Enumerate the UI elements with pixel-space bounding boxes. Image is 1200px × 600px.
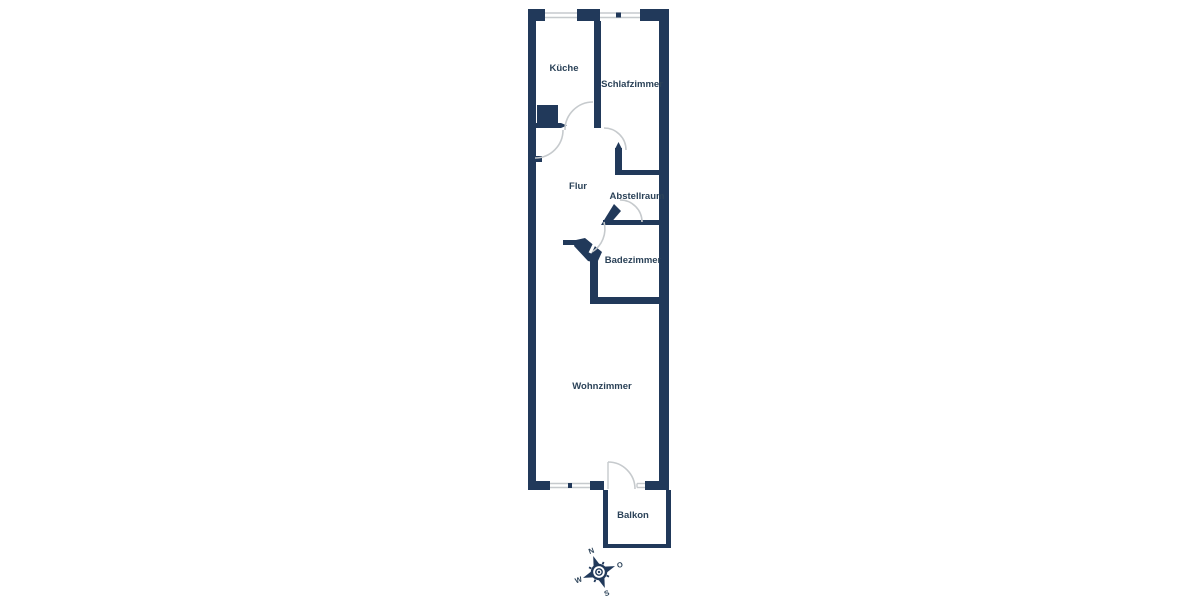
window-kueche xyxy=(545,13,577,18)
compass-label-north: N xyxy=(587,546,595,556)
wall-balkon-left xyxy=(603,490,608,548)
door-arc-balkon xyxy=(608,462,635,489)
wall-kueche-schlafzimmer xyxy=(594,21,601,128)
compass-label-east: O xyxy=(616,560,625,571)
kueche-fixture-block xyxy=(537,105,558,125)
wall-bottom-right-corner xyxy=(645,481,669,490)
door-arc-abstellraum xyxy=(620,200,642,222)
window-mullion xyxy=(568,483,572,488)
door-arc-kueche-flur xyxy=(535,130,563,158)
room-label-schlafzimmer: Schlafzimmer xyxy=(601,79,663,90)
wall-top-right-corner xyxy=(640,9,669,21)
room-labels: Küche Schlafzimmer Flur Abstellraum Bade… xyxy=(549,63,664,521)
door-swings xyxy=(535,102,642,489)
window-balkon-side xyxy=(637,484,645,488)
window-mullion xyxy=(616,13,621,18)
wall-balkon-right xyxy=(666,490,671,548)
wall-kueche-bottom xyxy=(536,123,561,128)
floorplan-page: Küche Schlafzimmer Flur Abstellraum Bade… xyxy=(0,0,1200,600)
wall-abstellraum-top xyxy=(615,170,659,175)
room-label-abstellraum: Abstellraum xyxy=(610,191,665,202)
wall-top-left-corner xyxy=(528,9,545,21)
wall-badezimmer-left xyxy=(590,255,598,300)
wall-bottom-middle xyxy=(590,481,604,490)
door-arc-schlafzimmer xyxy=(604,128,626,150)
window-wohnzimmer xyxy=(550,483,590,488)
door-arc-kueche xyxy=(565,102,593,130)
wall-badezimmer-bottom xyxy=(590,297,659,304)
room-label-flur: Flur xyxy=(569,181,587,192)
room-label-wohnzimmer: Wohnzimmer xyxy=(572,381,632,392)
window-schlafzimmer xyxy=(600,13,640,18)
room-label-badezimmer: Badezimmer xyxy=(605,255,662,266)
wall-cap xyxy=(615,142,622,149)
compass-label-south: S xyxy=(603,588,611,598)
compass-label-west: W xyxy=(574,574,585,585)
room-label-kueche: Küche xyxy=(549,63,578,74)
wall-top-middle xyxy=(577,9,600,21)
floorplan-drawing: Küche Schlafzimmer Flur Abstellraum Bade… xyxy=(0,0,1200,600)
wall-balkon-bottom xyxy=(603,544,671,548)
room-label-balkon: Balkon xyxy=(617,510,649,521)
wall-left xyxy=(528,9,536,490)
wall-bottom-left-corner xyxy=(528,481,550,490)
